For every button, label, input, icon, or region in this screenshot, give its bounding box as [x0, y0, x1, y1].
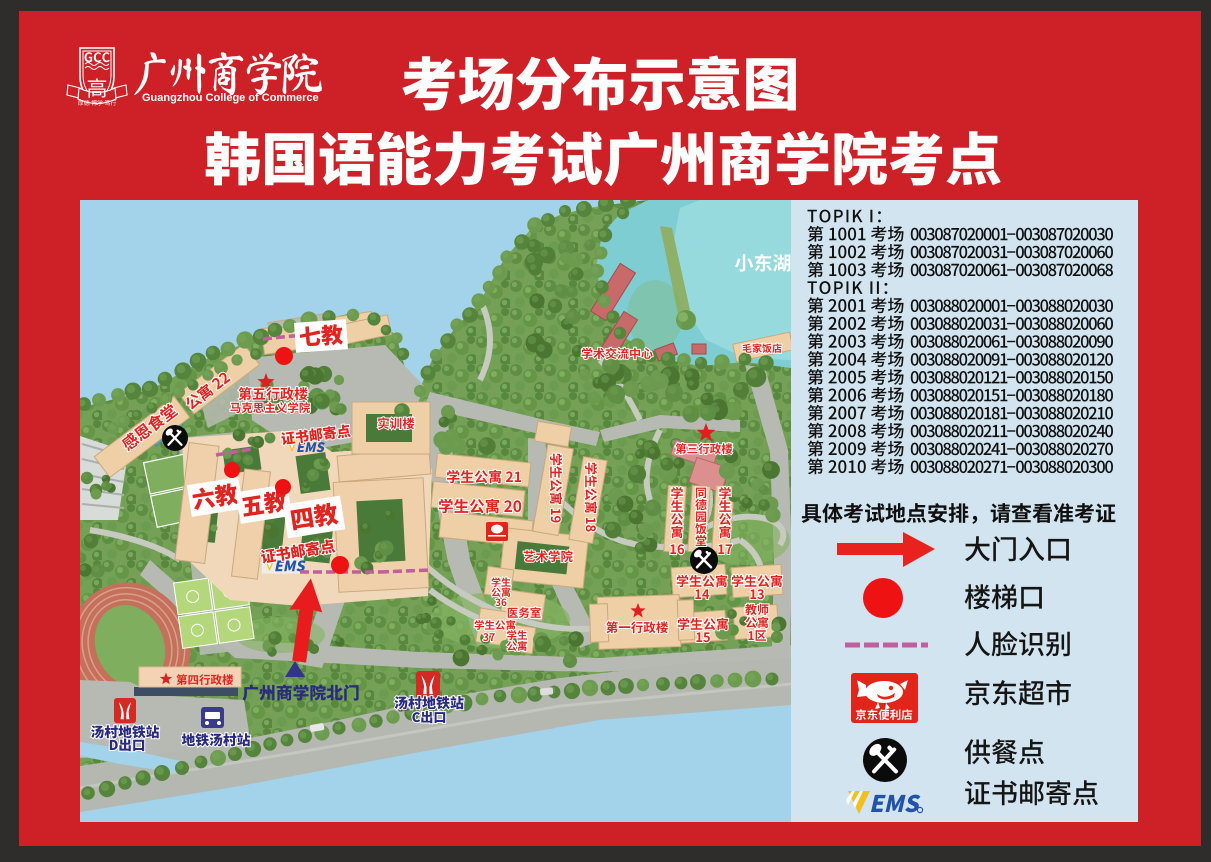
svg-text:Guangzhou College of Commerce: Guangzhou College of Commerce	[142, 92, 319, 104]
